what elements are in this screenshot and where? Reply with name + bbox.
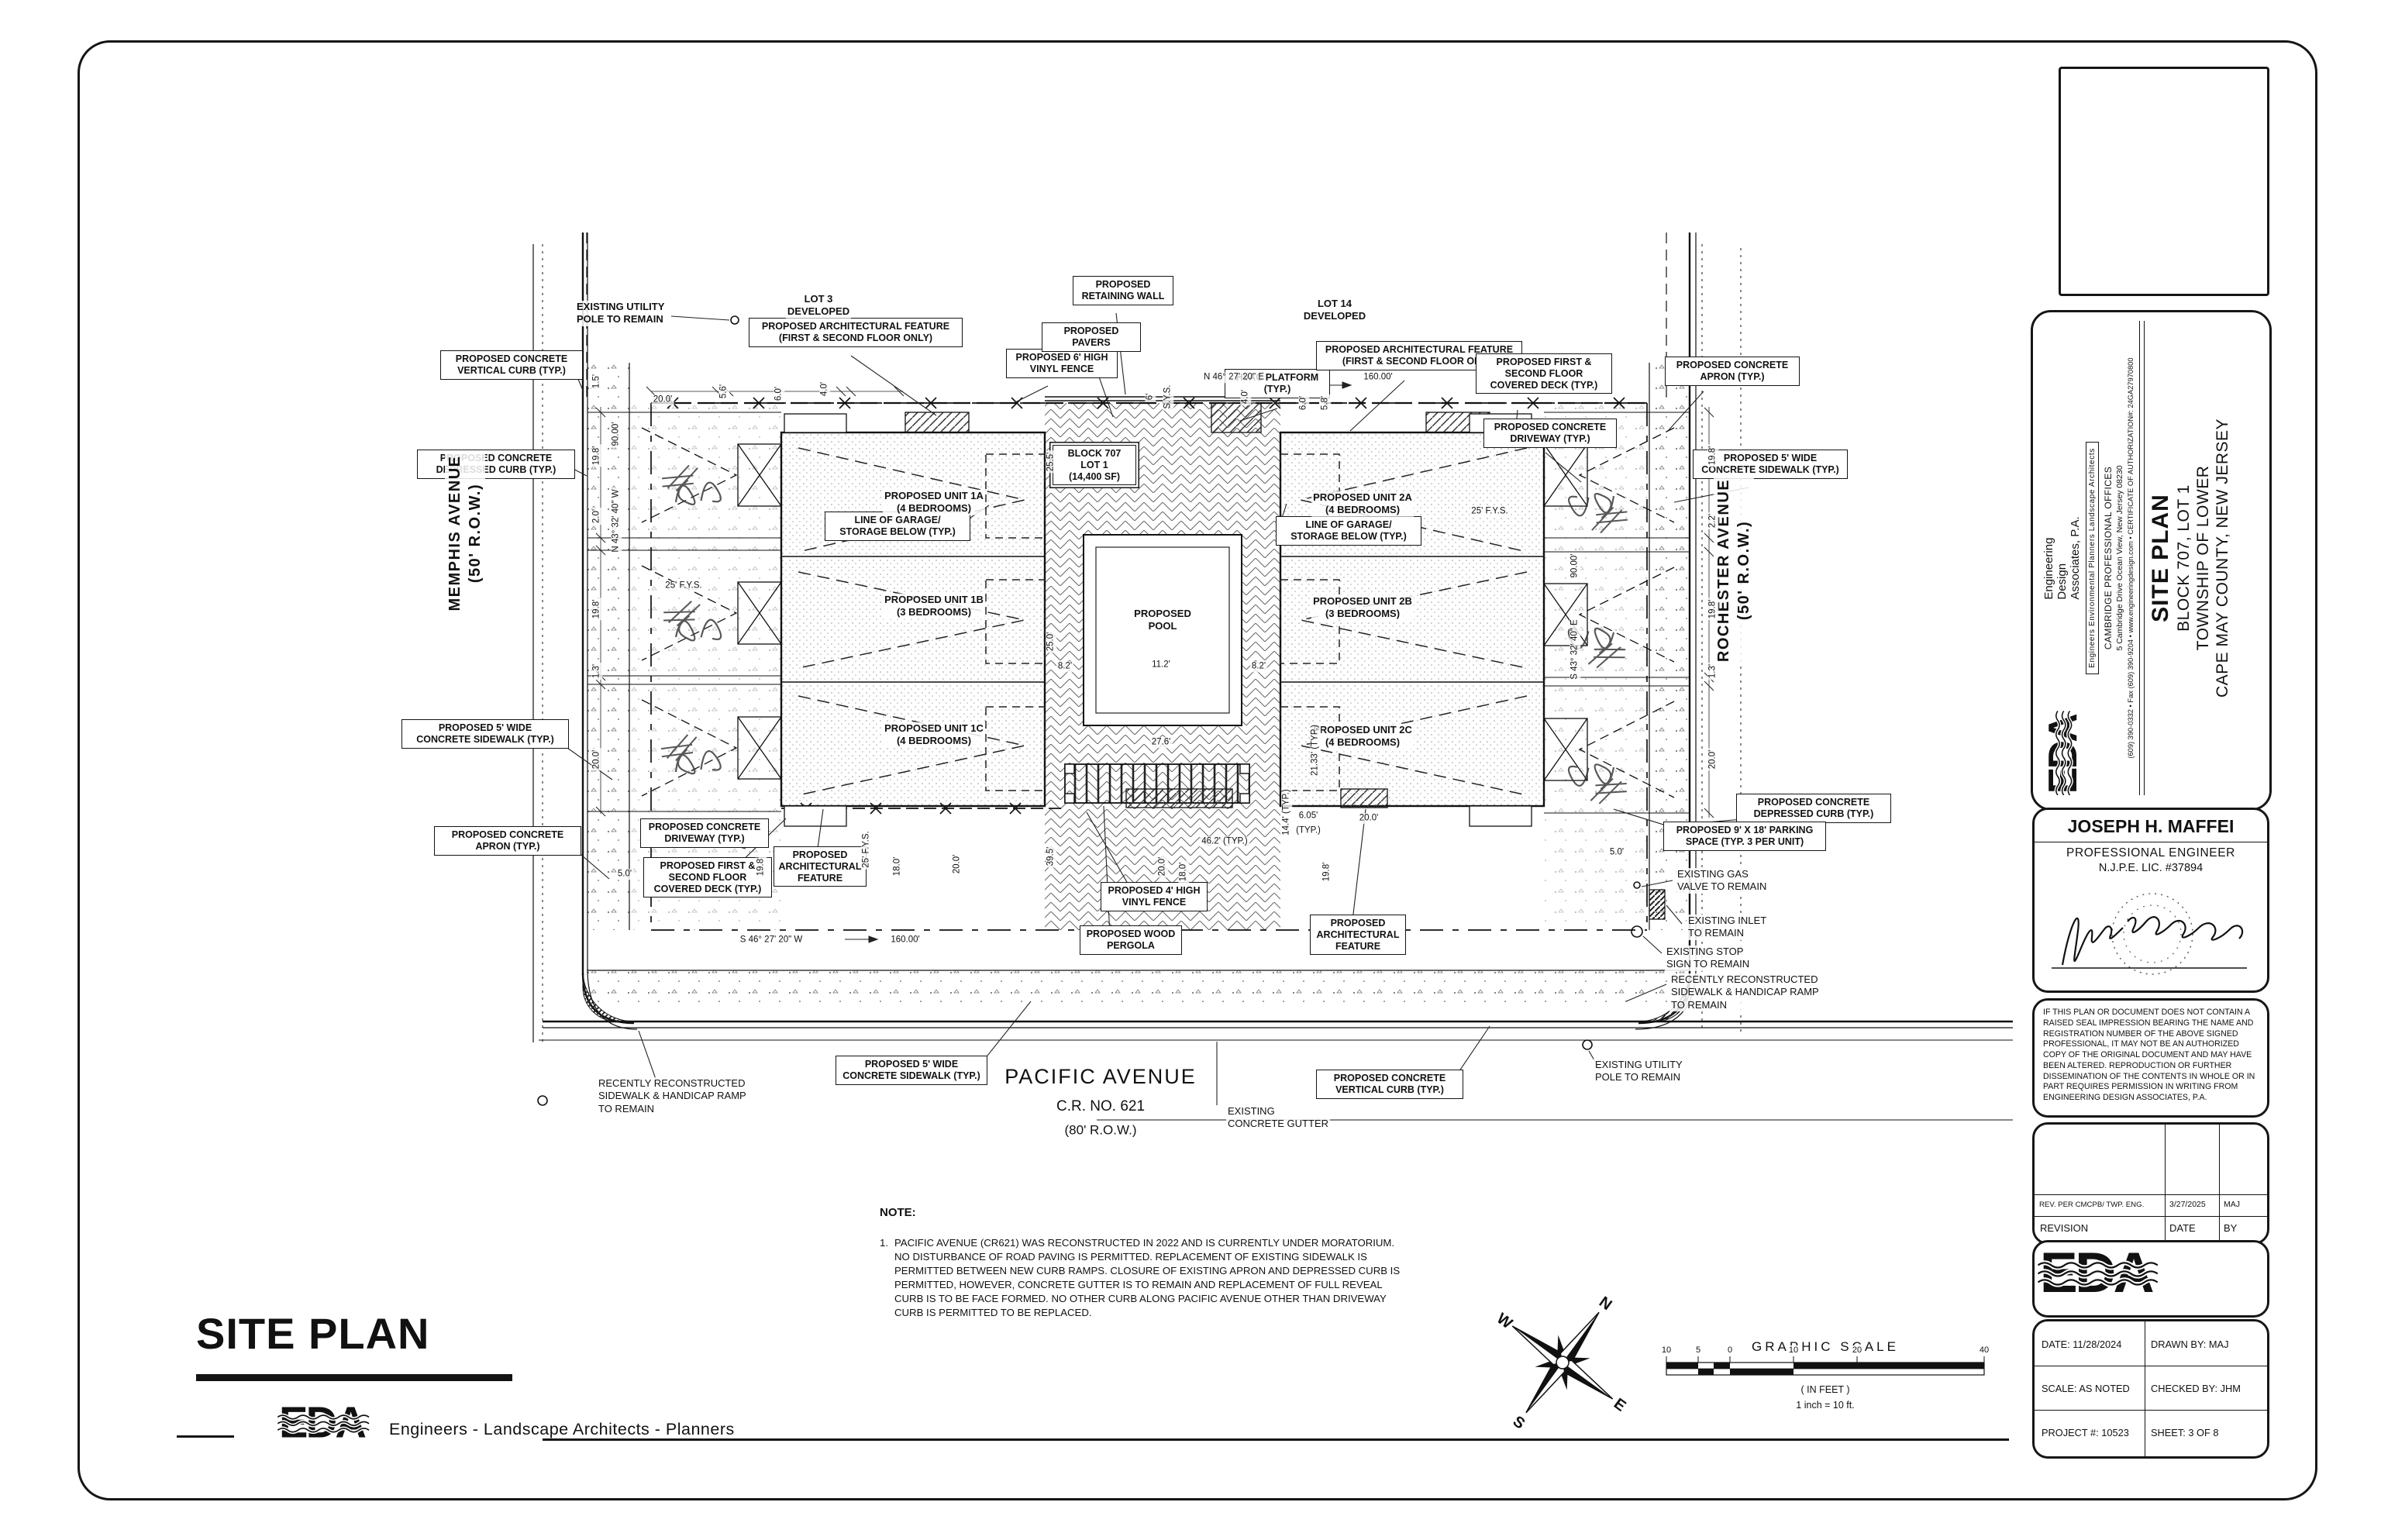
label-rochester-avenue: ROCHESTER AVENUE (50' R.O.W.) xyxy=(1714,477,1754,663)
dim: 20.0' xyxy=(1157,856,1168,878)
scale-ratio: 1 inch = 10 ft. xyxy=(1796,1400,1854,1411)
label-ramp-sw: RECENTLY RECONSTRUCTED SIDEWALK & HANDIC… xyxy=(597,1077,748,1115)
divider xyxy=(2139,321,2145,795)
scale-units: ( IN FEET ) xyxy=(1801,1384,1850,1395)
callout-arch-feature-south-left: PROPOSED ARCHITECTURAL FEATURE xyxy=(774,846,867,887)
firm-office: CAMBRIDGE PROFESSIONAL OFFICES xyxy=(2103,467,2114,649)
engineer-signature xyxy=(2044,891,2255,982)
scale-tick: 5 xyxy=(1696,1345,1700,1355)
label-gas-valve: EXISTING GAS VALVE TO REMAIN xyxy=(1676,868,1768,894)
scale-tick: 0 xyxy=(1728,1345,1732,1355)
label-unit-1a: PROPOSED UNIT 1A (4 BEDROOMS) xyxy=(883,490,985,515)
callout-driveway-south: PROPOSED CONCRETE DRIVEWAY (TYP.) xyxy=(640,818,769,848)
dim: 18.0' xyxy=(892,856,903,878)
dim: 5.8' xyxy=(1320,394,1331,412)
eda-logo-footer-icon xyxy=(277,1400,372,1445)
callout-garage-right: LINE OF GARAGE/ STORAGE BELOW (TYP.) xyxy=(1276,516,1421,546)
callout-vertical-curb-left: PROPOSED CONCRETE VERTICAL CURB (TYP.) xyxy=(440,350,583,380)
dim: 6' xyxy=(1145,392,1156,402)
dim: 90.00' xyxy=(1570,553,1580,580)
callout-covered-deck-south: PROPOSED FIRST & SECOND FLOOR COVERED DE… xyxy=(643,857,772,897)
dim: 1.3' xyxy=(1707,663,1718,680)
dim: 19.8' xyxy=(1707,598,1718,621)
dim: 19.8' xyxy=(1321,861,1332,884)
scale-tick: 10 xyxy=(1789,1345,1798,1355)
label-pool: PROPOSED POOL xyxy=(1132,608,1193,633)
callout-wood-pergola: PROPOSED WOOD PERGOLA xyxy=(1080,925,1182,955)
titleblock-firm-content: Engineering Design Associates, P.A. Engi… xyxy=(2042,321,2260,795)
callout-4ft-vinyl-fence: PROPOSED 4' HIGH VINYL FENCE xyxy=(1101,882,1208,911)
dim: 1.5' xyxy=(591,373,602,390)
dim: 160.00' xyxy=(1362,372,1394,383)
label-ramp-se: RECENTLY RECONSTRUCTED SIDEWALK & HANDIC… xyxy=(1669,973,1821,1011)
callout-arch-feature-south-right: PROPOSED ARCHITECTURAL FEATURE xyxy=(1310,915,1406,955)
dim: 4.0' xyxy=(1240,388,1251,405)
eda-logo-sidebar-icon xyxy=(2042,708,2083,795)
scale-tick: 10 xyxy=(1662,1345,1671,1355)
sheet-subtitle-township: TOWNSHIP OF LOWER xyxy=(2194,466,2213,651)
callout-sidewalk-south: PROPOSED 5' WIDE CONCRETE SIDEWALK (TYP.… xyxy=(836,1056,987,1085)
dim: 20.0' xyxy=(591,749,602,771)
callout-apron-left: PROPOSED CONCRETE APRON (TYP.) xyxy=(434,826,581,856)
dim: 6.05' xyxy=(1297,811,1320,822)
label-utility-pole-se: EXISTING UTILITY POLE TO REMAIN xyxy=(1594,1059,1684,1084)
dim: 20.0' xyxy=(1707,749,1718,771)
note-text: PACIFIC AVENUE (CR621) WAS RECONSTRUCTED… xyxy=(894,1236,1401,1320)
scale-tick: 40 xyxy=(1980,1345,1989,1355)
bearing-south: S 46° 27' 20" W xyxy=(739,935,805,946)
dim: 19.8' xyxy=(756,856,767,878)
bearing-east: S 43° 32' 40" E xyxy=(1570,618,1580,680)
label-stop-sign: EXISTING STOP SIGN TO REMAIN xyxy=(1665,946,1751,971)
callout-6ft-vinyl-fence: PROPOSED 6' HIGH VINYL FENCE xyxy=(1006,349,1118,378)
dim: 25.5' xyxy=(1046,451,1056,474)
firm-contact: (609) 390-0332 • Fax (609) 390-9204 • ww… xyxy=(2127,357,2135,758)
compass-n: N xyxy=(1596,1294,1615,1314)
label-utility-pole-nw: EXISTING UTILITY POLE TO REMAIN xyxy=(575,301,666,326)
sheet-subtitle-county: CAPE MAY COUNTY, NEW JERSEY xyxy=(2214,419,2232,698)
firm-name: Engineering Design Associates, P.A. xyxy=(2043,516,2082,599)
bearing-north: N 46° 27' 20" E xyxy=(1202,372,1266,383)
dim: 8.2' xyxy=(1250,661,1267,672)
dim: 5.0' xyxy=(1608,847,1625,858)
dim: 14.4' (TYP.) xyxy=(1281,787,1292,837)
callout-apron-right: PROPOSED CONCRETE APRON (TYP.) xyxy=(1665,357,1800,386)
dim-fys-right: 25' F.Y.S. xyxy=(1470,506,1509,517)
dim: 19.8' xyxy=(591,598,602,621)
callout-sidewalk-left: PROPOSED 5' WIDE CONCRETE SIDEWALK (TYP.… xyxy=(401,719,569,749)
label-memphis-avenue: MEMPHIS AVENUE (50' R.O.W.) xyxy=(445,453,485,612)
label-unit-2b: PROPOSED UNIT 2B (3 BEDROOMS) xyxy=(1311,595,1414,621)
graphic-scale-bar xyxy=(1666,1356,1984,1375)
callout-block-lot: BLOCK 707 LOT 1 (14,400 SF) xyxy=(1053,445,1136,485)
dim: 4.0' xyxy=(819,381,830,398)
dim: 90.00' xyxy=(611,421,622,448)
callout-arch-feature-north-left: PROPOSED ARCHITECTURAL FEATURE (FIRST & … xyxy=(749,318,963,347)
dim: 8.2' xyxy=(1056,661,1073,672)
dim: 20.0' xyxy=(652,394,674,405)
callout-depressed-curb-left: PROPOSED CONCRETE DEPRESSED CURB (TYP.) xyxy=(417,450,575,479)
label-unit-1b: PROPOSED UNIT 1B (3 BEDROOMS) xyxy=(883,594,985,619)
footer-rule-left xyxy=(177,1435,234,1438)
label-inlet: EXISTING INLET TO REMAIN xyxy=(1687,915,1768,940)
dim: (TYP.) xyxy=(1294,825,1322,836)
compass-s: S xyxy=(1510,1413,1528,1433)
callout-driveway-north: PROPOSED CONCRETE DRIVEWAY (TYP.) xyxy=(1483,419,1617,448)
dim-fys-left: 25' F.Y.S. xyxy=(663,581,703,591)
sheet-title: SITE PLAN xyxy=(2148,494,2174,622)
dim-pool-width: 11.2' xyxy=(1150,660,1172,670)
dim: 1.3' xyxy=(591,663,602,680)
firm-address: 5 Cambridge Drive Ocean View, New Jersey… xyxy=(2115,465,2124,650)
footer-tagline: Engineers - Landscape Architects - Plann… xyxy=(389,1420,735,1439)
callout-covered-deck-north: PROPOSED FIRST & SECOND FLOOR COVERED DE… xyxy=(1476,353,1612,394)
eda-logo-large-icon xyxy=(2035,1242,2165,1301)
note-heading: NOTE: xyxy=(880,1206,1401,1219)
callout-garage-left: LINE OF GARAGE/ STORAGE BELOW (TYP.) xyxy=(825,512,970,541)
dim: 2.0' xyxy=(591,508,602,525)
callout-pavers: PROPOSED PAVERS xyxy=(1042,322,1141,352)
label-unit-2c: PROPOSED UNIT 2C (4 BEDROOMS) xyxy=(1311,724,1414,749)
label-80-row: (80' R.O.W.) xyxy=(1063,1121,1139,1138)
scale-tick: 20 xyxy=(1852,1345,1862,1355)
dim: 20.0' xyxy=(952,853,963,876)
dim-fys: 25' F.Y.S. xyxy=(861,829,872,869)
label-lot3: LOT 3 DEVELOPED xyxy=(786,293,851,319)
graphic-scale-title: GRAPHIC SCALE xyxy=(1752,1339,1899,1355)
note-number: 1. xyxy=(880,1236,888,1320)
dim: 21.33' (TYP.) xyxy=(1310,723,1321,777)
dim: 19.8' xyxy=(1707,445,1718,467)
dim: S.Y.S. xyxy=(1163,383,1173,410)
dim: 5.6' xyxy=(718,383,729,400)
compass-e: E xyxy=(1611,1395,1629,1415)
footer-rule-right xyxy=(543,1438,2009,1441)
note-block: NOTE: 1. PACIFIC AVENUE (CR621) WAS RECO… xyxy=(880,1206,1401,1320)
dim: 18.0' xyxy=(1178,861,1189,884)
north-arrow-icon: N E S W xyxy=(1450,1250,1673,1474)
bearing-west: N 43° 32' 40" W xyxy=(611,487,622,553)
dim: 160.00' xyxy=(889,935,921,946)
page-title: SITE PLAN xyxy=(196,1308,429,1359)
firm-tagline: Engineers Environmental Planners Landsca… xyxy=(2086,442,2099,674)
dim: 46.2' (TYP.) xyxy=(1200,836,1249,847)
label-unit-2a: PROPOSED UNIT 2A (4 BEDROOMS) xyxy=(1311,491,1414,517)
label-cr-621: C.R. NO. 621 xyxy=(1055,1097,1146,1116)
dim: 2.2' xyxy=(1707,512,1718,529)
callout-vertical-curb-south: PROPOSED CONCRETE VERTICAL CURB (TYP.) xyxy=(1316,1070,1463,1099)
callout-parking-space: PROPOSED 9' X 18' PARKING SPACE (TYP. 3 … xyxy=(1663,822,1826,851)
sheet-subtitle-block-lot: BLOCK 707, LOT 1 xyxy=(2175,484,2193,632)
dim: 39.5' xyxy=(1046,846,1056,868)
callout-depressed-curb-right: PROPOSED CONCRETE DEPRESSED CURB (TYP.) xyxy=(1736,794,1891,823)
label-lot14: LOT 14 DEVELOPED xyxy=(1302,298,1367,323)
sheet: EDA xyxy=(0,0,2381,1540)
dim: 6.0' xyxy=(774,385,784,402)
title-underline xyxy=(196,1374,512,1381)
label-concrete-gutter: EXISTING CONCRETE GUTTER xyxy=(1226,1105,1330,1131)
compass-w: W xyxy=(1494,1310,1515,1332)
label-unit-1c: PROPOSED UNIT 1C (4 BEDROOMS) xyxy=(883,722,985,748)
dim: 5.0' xyxy=(616,869,633,880)
dim: 20.0' xyxy=(1358,813,1380,824)
dim: 6.0' xyxy=(1298,394,1309,412)
label-pacific-avenue: PACIFIC AVENUE xyxy=(1003,1064,1198,1090)
dim: 27.6' xyxy=(1150,737,1173,748)
dim: 19.8' xyxy=(591,445,602,467)
dim: 25.0' xyxy=(1046,631,1056,653)
callout-retaining-wall: PROPOSED RETAINING WALL xyxy=(1073,276,1173,305)
